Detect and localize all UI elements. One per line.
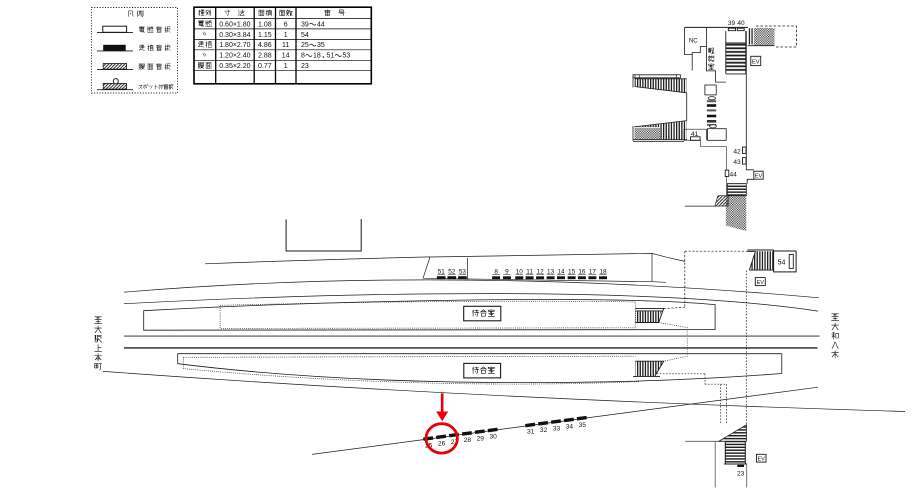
svg-text:2.88: 2.88: [258, 53, 272, 60]
svg-text:NC: NC: [689, 38, 698, 45]
svg-text:54: 54: [301, 32, 309, 39]
svg-text:0.30×3.84: 0.30×3.84: [219, 32, 250, 39]
svg-text:29: 29: [477, 435, 485, 442]
svg-text:23: 23: [301, 63, 309, 70]
svg-text:43: 43: [733, 159, 741, 166]
svg-text:0.60×1.80: 0.60×1.80: [219, 21, 250, 28]
svg-text:1.15: 1.15: [258, 32, 272, 39]
svg-text:39: 39: [301, 21, 309, 28]
svg-text:EV: EV: [757, 280, 765, 286]
svg-text:33: 33: [553, 425, 561, 432]
svg-text:11: 11: [282, 42, 289, 49]
svg-text:40: 40: [737, 20, 745, 27]
svg-text:44: 44: [317, 21, 325, 28]
svg-text:54: 54: [778, 260, 786, 267]
svg-text:6: 6: [284, 21, 288, 28]
svg-text:31: 31: [527, 429, 535, 436]
svg-text:0.77: 0.77: [258, 63, 272, 70]
svg-text:4.86: 4.86: [258, 42, 272, 49]
svg-text:44: 44: [730, 171, 738, 178]
svg-text:1.08: 1.08: [258, 21, 272, 28]
svg-text:25: 25: [301, 42, 309, 49]
svg-text:32: 32: [540, 427, 548, 434]
svg-text:34: 34: [566, 424, 574, 431]
svg-text:1: 1: [284, 32, 288, 39]
svg-text:39: 39: [728, 20, 736, 27]
svg-text:51: 51: [327, 53, 335, 60]
svg-text:EV: EV: [757, 457, 765, 463]
svg-text:1: 1: [284, 63, 288, 70]
svg-text:26: 26: [438, 441, 446, 448]
svg-text:14: 14: [282, 53, 290, 60]
svg-text:35: 35: [579, 422, 587, 429]
svg-text:42: 42: [733, 148, 741, 155]
svg-text:30: 30: [490, 434, 498, 441]
svg-text:EV: EV: [755, 174, 763, 180]
svg-text:8: 8: [301, 53, 305, 60]
svg-text:0.35×2.20: 0.35×2.20: [219, 63, 250, 70]
svg-text:28: 28: [464, 437, 472, 444]
svg-text:23: 23: [737, 471, 745, 478]
svg-text:18: 18: [313, 53, 321, 60]
svg-text:1.80×2.70: 1.80×2.70: [219, 42, 250, 49]
svg-text:35: 35: [317, 42, 325, 49]
svg-text:1.20×2.40: 1.20×2.40: [219, 53, 250, 60]
svg-text:EV: EV: [752, 60, 760, 66]
svg-text:53: 53: [343, 53, 351, 60]
